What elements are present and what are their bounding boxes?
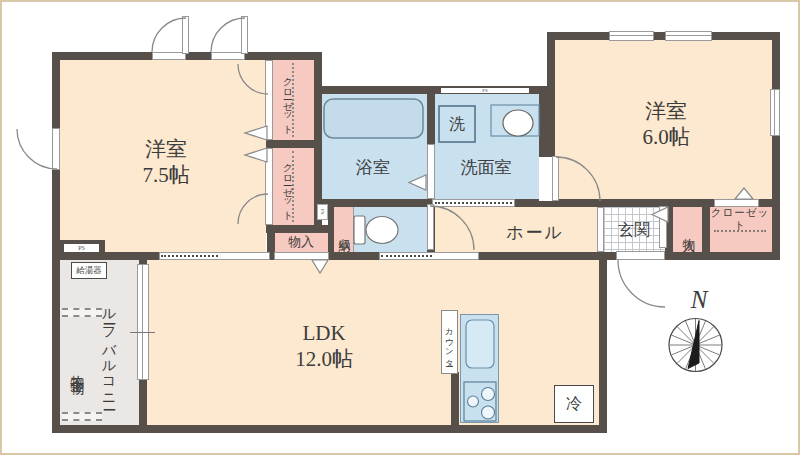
wall [267, 233, 275, 252]
entrance-door-leaf [616, 251, 665, 260]
sliding-door-track [435, 202, 512, 204]
laundry-hook-mark [62, 308, 102, 317]
wall [451, 372, 459, 425]
door-arc [211, 18, 245, 52]
bathroom-label: 浴室 [343, 158, 403, 178]
ldk-label: LDK 12.0帖 [254, 318, 394, 374]
water-heater-label: 給湯器 [71, 262, 107, 279]
compass-spokes [670, 319, 722, 371]
ps-shaft: PS [441, 88, 529, 93]
north-label: N [684, 286, 714, 314]
wall [266, 140, 314, 148]
door-leaf [427, 204, 434, 250]
storage-mid-label: 物入 [283, 234, 319, 251]
window [609, 31, 654, 41]
storage-right-label: 物入 [679, 208, 697, 250]
washer-label: 洗 [439, 106, 475, 142]
laundry-hardware-label: 物干金物 [65, 320, 89, 415]
bathroom-floor [322, 94, 427, 199]
ps-shaft: PS [64, 244, 99, 252]
wall [52, 425, 607, 433]
ps-label: PS [320, 209, 325, 215]
hall-label: ホール [495, 222, 575, 243]
door-arc [152, 18, 186, 52]
room-75-size: 7.5帖 [142, 162, 189, 188]
window [770, 89, 780, 136]
kitchen-unit [460, 314, 499, 423]
door-leaf [182, 16, 189, 54]
ldk-name: LDK [295, 320, 353, 346]
door-arc [17, 129, 57, 169]
compass [669, 319, 722, 372]
door-leaf [241, 16, 248, 54]
wall [328, 207, 334, 252]
compass-circle [669, 319, 722, 372]
sliding-door-track [381, 255, 432, 257]
entrance-step [597, 207, 604, 252]
door-leaf [552, 156, 559, 201]
door-opening [152, 52, 186, 60]
closet-door [265, 60, 273, 140]
room-75-label: 洋室 7.5帖 [106, 134, 226, 190]
closet-upper-label: クローゼット [279, 63, 295, 138]
door-arc [618, 260, 665, 307]
door-opening [211, 52, 245, 60]
door-opening [427, 144, 435, 199]
window-center-tick [130, 332, 155, 333]
wall [599, 252, 607, 433]
room-60-name: 洋室 [642, 98, 689, 124]
entrance-label: 玄関 [609, 220, 659, 240]
door-opening [274, 252, 329, 260]
closet-door [265, 148, 273, 225]
ps-label: PS [78, 245, 85, 251]
balcony-window [137, 264, 149, 380]
ps-label: PS [482, 88, 488, 93]
ldk-size: 12.0帖 [295, 346, 353, 372]
window [665, 31, 712, 41]
balcony-label: ルーフバルコニー [97, 278, 121, 424]
fridge-label: 冷 [554, 385, 594, 423]
closet-right-label: クローゼット [708, 210, 772, 228]
counter-label: カウンター [442, 313, 457, 372]
compass-needle [688, 321, 699, 369]
toilet-floor [354, 207, 427, 252]
floor-plan: PS PS PS [0, 0, 800, 455]
closet-lower-label: クローゼット [279, 150, 295, 223]
wall [547, 32, 780, 40]
door-leaf [659, 206, 667, 248]
sliding-door-track [161, 255, 218, 257]
washroom-label: 洗面室 [446, 158, 526, 178]
room-60-size: 6.0帖 [642, 124, 689, 150]
room-75-name: 洋室 [142, 136, 189, 162]
room-60-label: 洋室 6.0帖 [606, 96, 726, 152]
wall [547, 32, 555, 94]
door-opening [52, 128, 60, 170]
shuno-label: 収納 [336, 211, 352, 249]
wall [266, 225, 334, 233]
ps-shaft: PS [317, 204, 328, 220]
wall [772, 32, 780, 260]
